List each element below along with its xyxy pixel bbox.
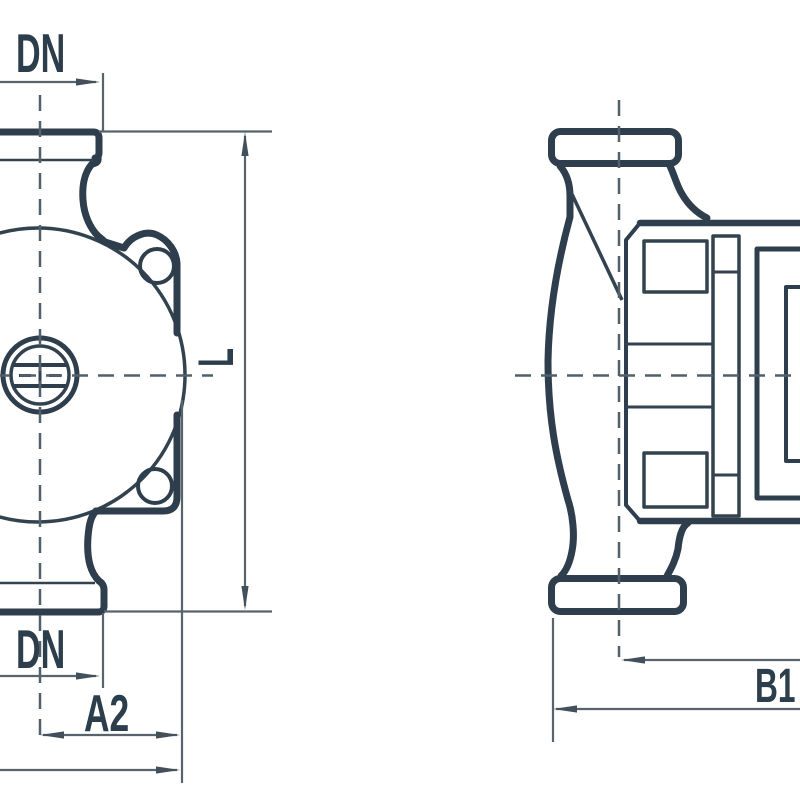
arrow-right-icon [76,78,100,85]
dimension-L-label: L [187,348,243,367]
bolt-circle-bottom [138,469,172,503]
dimension-L: L [187,132,248,610]
bolt-circle-top [140,249,174,283]
arrow-down-icon [241,586,248,610]
technical-drawing-canvas: L DN DN A2 [0,0,800,800]
dimension-B1-label: B1 [755,658,795,712]
boss-top [644,241,707,292]
arrow-right-icon [156,766,180,773]
dimension-DN-top-label: DN [16,23,65,84]
front-plate-left-edge [626,223,640,521]
pump-drawing-svg: L DN DN A2 [0,0,800,800]
dimension-DN-bottom: DN [0,619,100,680]
dimension-A2: A2 [40,685,180,742]
dimension-A2-label: A2 [84,685,129,742]
arrow-left-icon [40,731,64,738]
housing-neck-top [670,166,707,218]
housing-neck-bottom [667,523,688,576]
front-view: L DN DN A2 [0,23,272,783]
bracket-lower-outline [96,415,177,511]
housing-web-diagonal [570,190,622,300]
side-flange-top [552,132,679,164]
housing-left-profile [548,166,573,576]
boss-bottom [644,453,707,507]
motor-box-inner [786,287,800,461]
arrow-right-icon [76,672,100,679]
neck-lower-outline [88,511,99,581]
dimension-DN-bottom-label: DN [16,619,65,680]
dimension-bottom-cutoff [0,766,180,773]
arrow-right-icon [156,731,180,738]
flange-bottom-outline [0,581,104,612]
bracket-upper-outline [83,158,177,333]
side-view: B1 [515,100,800,742]
arrow-up-icon [241,132,248,156]
arrow-left-icon [621,656,645,663]
arrow-left-icon [553,705,577,712]
side-flange-bottom [552,579,684,612]
dimension-DN-top: DN [0,23,100,86]
flange-top-outline [0,132,99,158]
dimension-B1: B1 [553,658,800,712]
